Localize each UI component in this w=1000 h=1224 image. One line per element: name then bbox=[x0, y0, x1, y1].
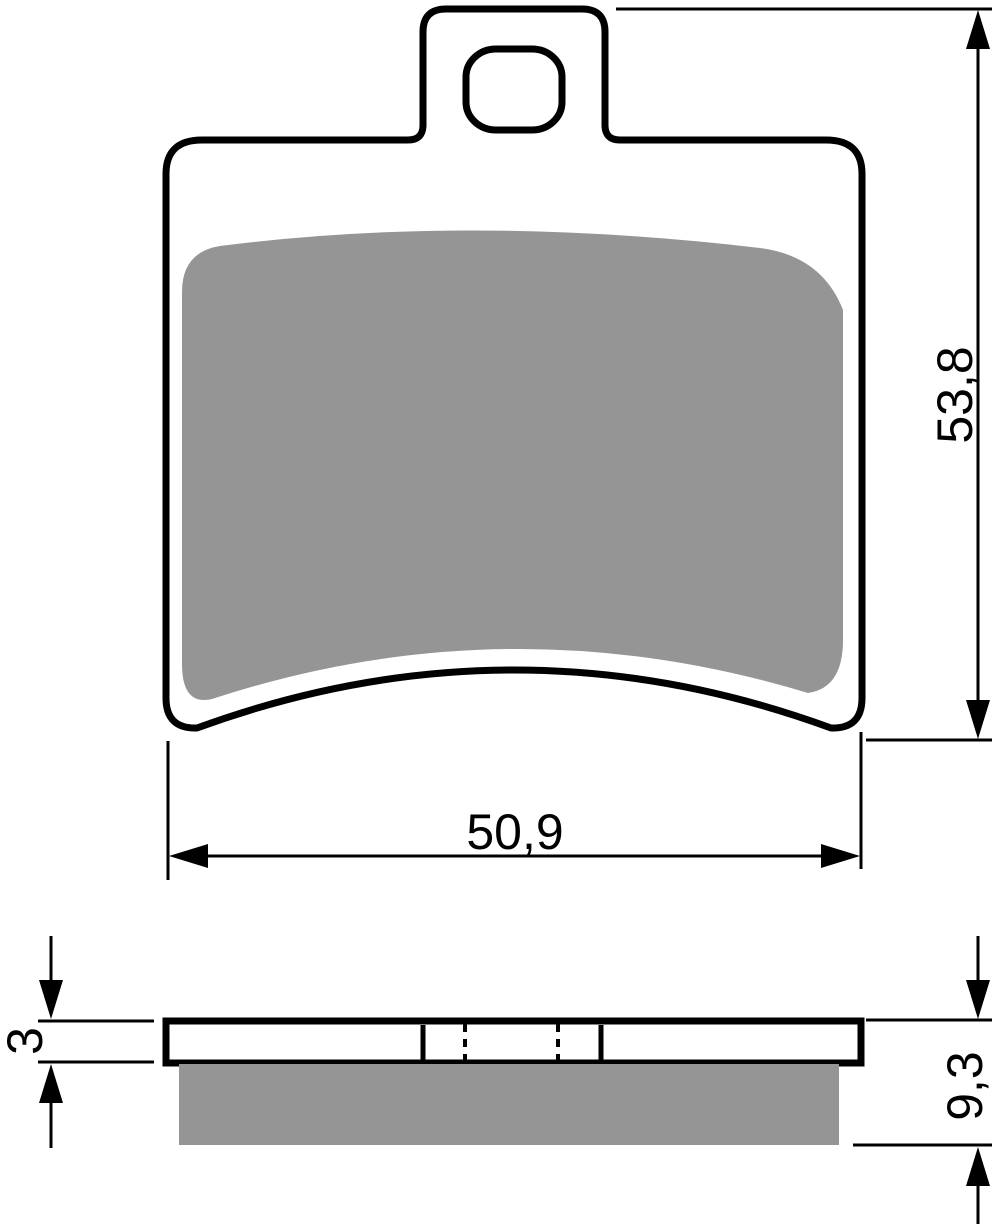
front-view bbox=[166, 9, 862, 728]
mounting-hole bbox=[466, 49, 562, 130]
brake-pad-technical-drawing: 53,8 50,9 3 9,3 bbox=[0, 0, 1000, 1224]
arrowhead bbox=[966, 10, 990, 49]
friction-material-front bbox=[182, 230, 843, 700]
friction-material-side bbox=[179, 1064, 839, 1145]
dimension-plate-thickness: 3 bbox=[0, 936, 154, 1148]
arrowhead bbox=[966, 700, 990, 739]
dimension-front-width: 50,9 bbox=[168, 732, 861, 880]
dimension-label-plate-thickness: 3 bbox=[0, 1027, 53, 1055]
dimension-label-overall-thickness: 9,3 bbox=[937, 1051, 993, 1121]
dimension-overall-thickness: 9,3 bbox=[853, 936, 993, 1224]
side-view bbox=[166, 1021, 861, 1145]
backing-plate-side bbox=[166, 1021, 861, 1063]
drawing-canvas: 53,8 50,9 3 9,3 bbox=[0, 0, 1000, 1224]
arrowhead bbox=[966, 980, 990, 1019]
dimension-label-front-width: 50,9 bbox=[466, 804, 563, 860]
dimension-label-front-height: 53,8 bbox=[927, 346, 983, 443]
arrowhead bbox=[39, 980, 63, 1019]
arrowhead bbox=[821, 844, 860, 868]
arrowhead bbox=[169, 844, 208, 868]
